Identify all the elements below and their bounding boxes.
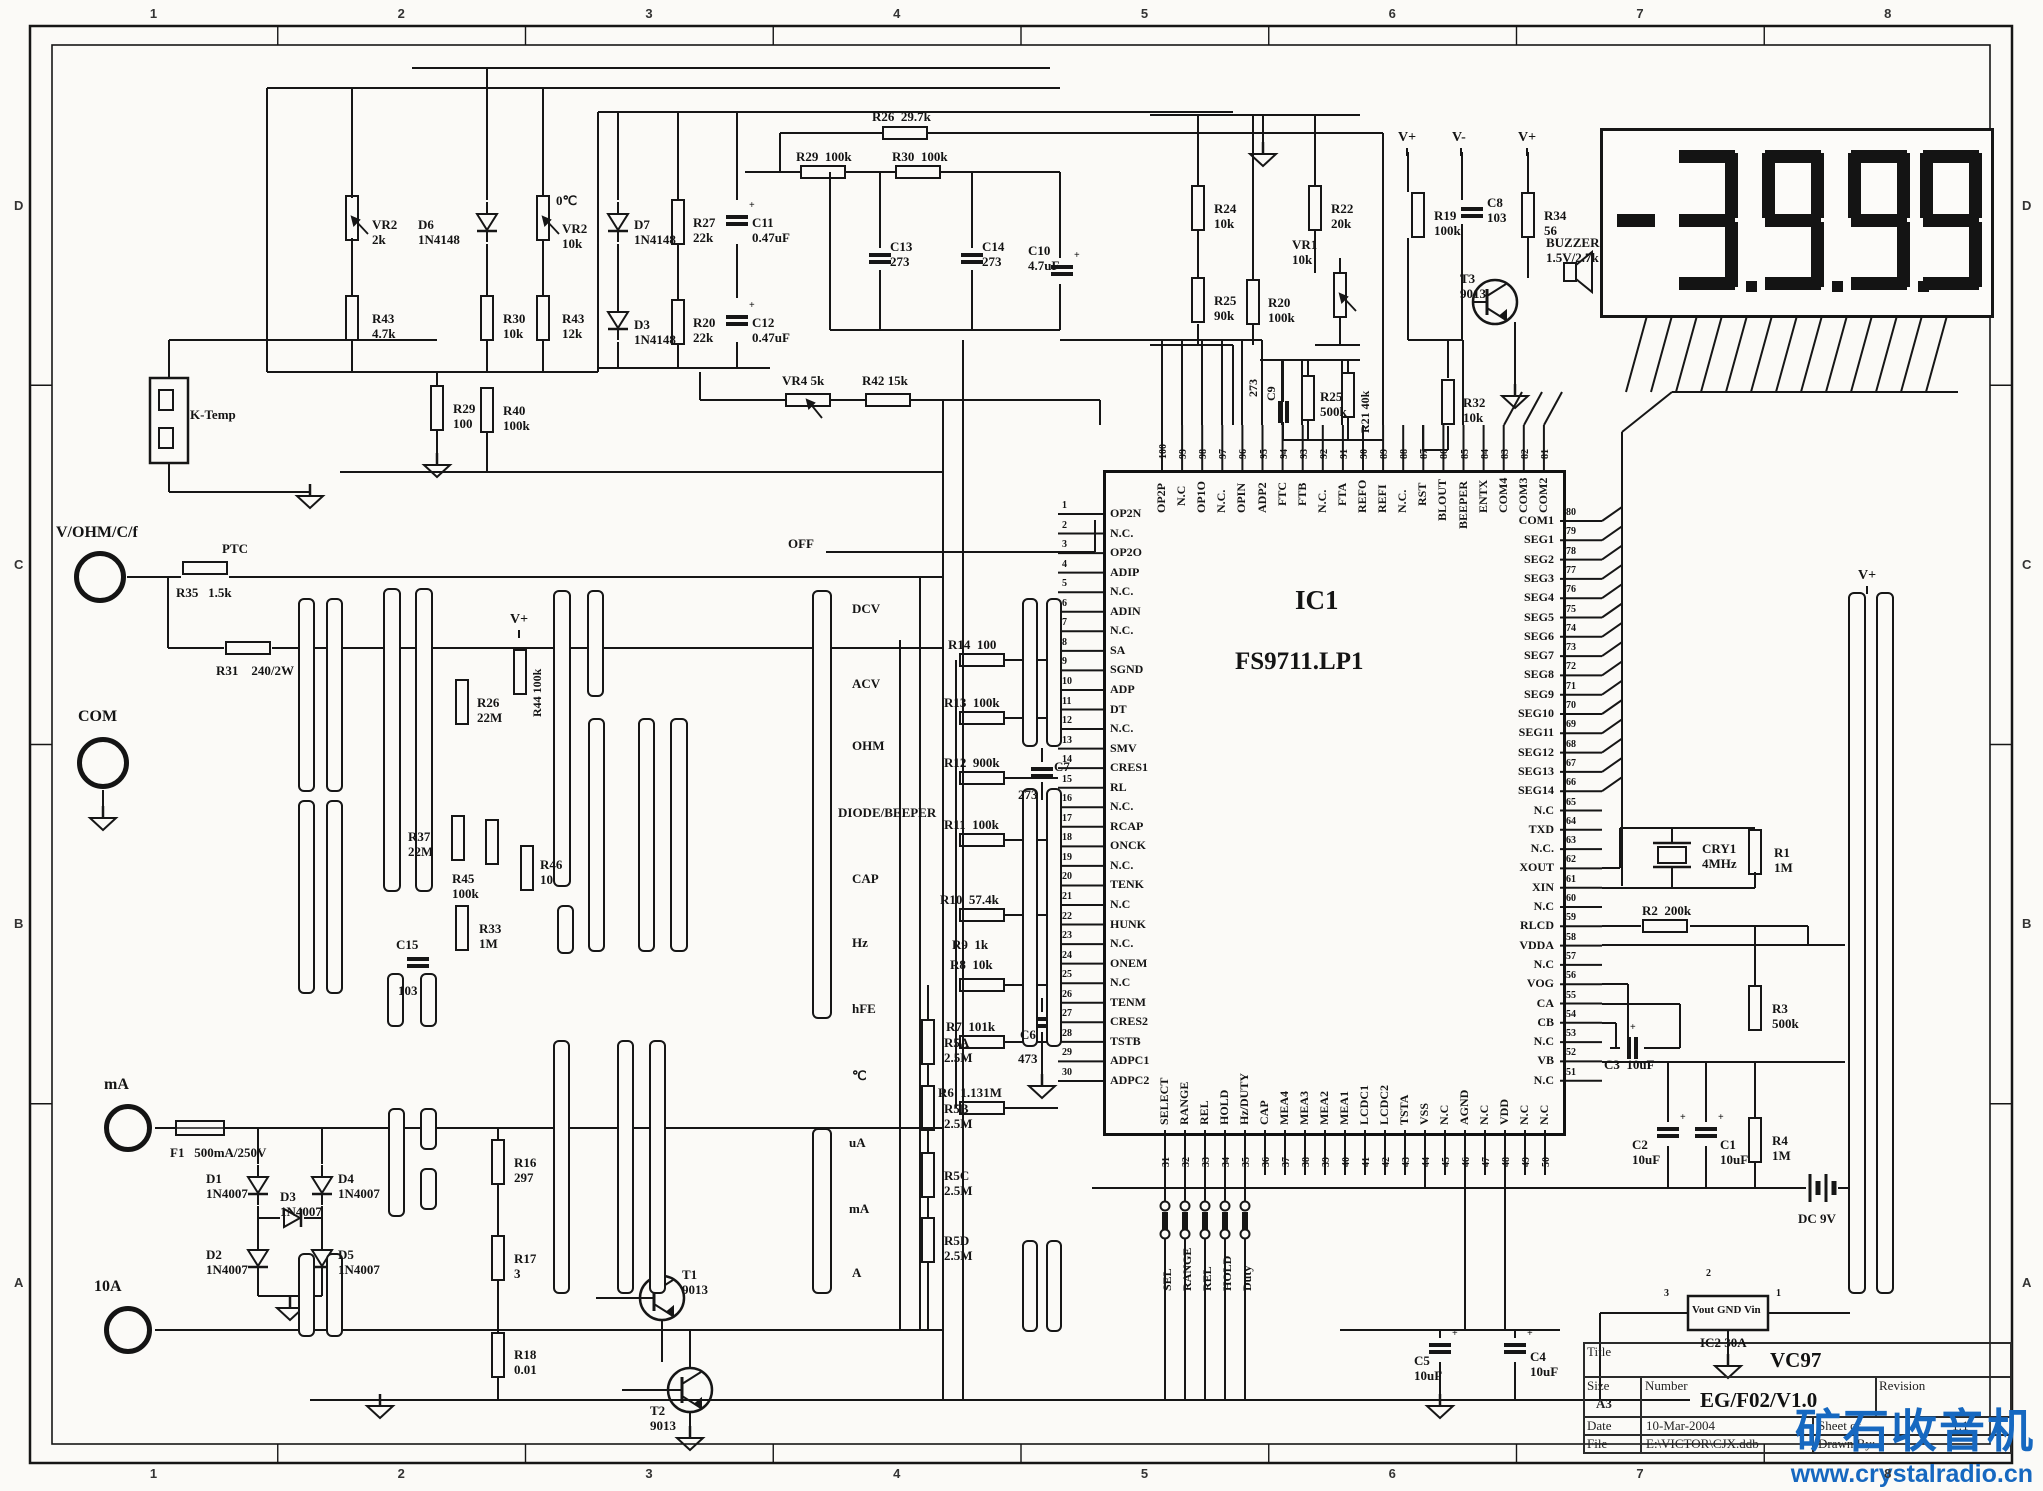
component-r7-label: R7 101k: [946, 1020, 995, 1035]
ic1-pin-13: SMV: [1110, 741, 1137, 756]
wire: [1851, 312, 1873, 392]
component-buzzer-label: BUZZER 1.5V/2.7k: [1546, 236, 1599, 265]
wire: [1602, 700, 1622, 714]
number-label: Number: [1645, 1378, 1688, 1394]
mode-hfe: hFE: [852, 1001, 876, 1017]
border-row-B: B: [14, 916, 23, 931]
ic1-pin-num-38: 38: [1301, 1157, 1312, 1167]
wire: [1544, 392, 1562, 425]
doc-title: VC97: [1770, 1348, 1821, 1373]
ic1-pin-num-35: 35: [1241, 1157, 1252, 1167]
component-c1-label: C1 10uF: [1720, 1138, 1748, 1167]
ic2-pin-3: 3: [1664, 1288, 1669, 1299]
ic1-pin-88: N.C.: [1395, 490, 1410, 513]
ic1-pin-55: CA: [1492, 996, 1554, 1011]
terminal-com: [77, 737, 129, 789]
lcd-segment: [1679, 214, 1735, 227]
button-hold: HOLD: [1220, 1256, 1235, 1291]
component-r42-label: R42 15k: [862, 374, 908, 389]
switch-bar: [1046, 788, 1062, 1047]
border-col-7: 7: [1636, 6, 1643, 21]
lcd-segment: [1851, 277, 1907, 290]
ic1-pin-num-31: 31: [1161, 1157, 1172, 1167]
switch-bar: [553, 1040, 570, 1294]
ic1-pin-5: N.C.: [1110, 584, 1133, 599]
ic1-pin-num-65: 65: [1566, 797, 1576, 808]
ic1-pin-17: RCAP: [1110, 819, 1143, 834]
component-d5-label: D5 1N4007: [338, 1248, 380, 1277]
wire: [1602, 546, 1622, 560]
ic1-pin-24: ONEM: [1110, 956, 1147, 971]
component-t2-label: T2 9013: [650, 1404, 676, 1433]
component-k-temp-label: K-Temp: [190, 408, 236, 423]
power-vplus: V+: [1858, 568, 1876, 584]
ic1-pin-33: REL: [1197, 1100, 1212, 1125]
ic1-pin-num-25: 25: [1062, 969, 1072, 980]
ic1-pin-96: OPIN: [1234, 483, 1249, 513]
ic1-pin-num-94: 94: [1279, 449, 1290, 459]
ic1-pin-67: SEG13: [1492, 764, 1554, 779]
wire: [1602, 604, 1622, 618]
component-r19-label: R19 100k: [1434, 209, 1461, 238]
ic1-pin-1: OP2N: [1110, 506, 1141, 521]
ic1-pin-num-86: 86: [1439, 449, 1450, 459]
button-duty: Duty: [1240, 1266, 1255, 1291]
border-col-3: 3: [645, 6, 652, 21]
component-t1-label: T1 9013: [682, 1268, 708, 1297]
terminal-10a: [104, 1306, 152, 1354]
ic1-pin-73: SEG7: [1492, 648, 1554, 663]
switch-bar: [1046, 1240, 1062, 1332]
ic1-pin-43: TSTA: [1397, 1095, 1412, 1125]
lcd-segment: [1762, 153, 1775, 218]
border-col-5: 5: [1141, 6, 1148, 21]
ic1-pin-num-42: 42: [1381, 1157, 1392, 1167]
lcd-segment: [1969, 153, 1982, 218]
component-r32-label: R32 10k: [1463, 396, 1485, 425]
switch-bar: [420, 973, 437, 1027]
component-c8-label: C8 103: [1487, 196, 1507, 225]
component-r18-label: R18 0.01: [514, 1348, 537, 1377]
ic1-pin-num-47: 47: [1481, 1157, 1492, 1167]
ic1-pin-num-87: 87: [1419, 449, 1430, 459]
ic1-pin-num-9: 9: [1062, 656, 1067, 667]
watermark-url: www.crystalradio.cn: [1791, 1460, 2033, 1489]
lcd-segment: [1897, 153, 1910, 218]
ic1-pin-69: SEG11: [1492, 725, 1554, 740]
switch-bar: [617, 1040, 634, 1294]
wire: [1602, 719, 1622, 733]
mode-diodebeeper: DIODE/BEEPER: [838, 805, 936, 821]
ic1-ref: IC1: [1295, 585, 1339, 616]
ic1-pin-95: ADP2: [1255, 483, 1270, 514]
component-r5a-label: R5A 2.5M: [944, 1036, 973, 1065]
ic1-pin-num-26: 26: [1062, 989, 1072, 1000]
ic1-pin-86: BLOUT: [1435, 479, 1450, 521]
ic1-pin-26: TENM: [1110, 995, 1146, 1010]
component-r26-label: R26 29.7k: [872, 110, 931, 125]
ic1-pin-num-85: 85: [1460, 449, 1471, 459]
ic1-pin-num-12: 12: [1062, 715, 1072, 726]
component-r27-label: R27 22k: [693, 216, 715, 245]
lcd-segment: [1679, 277, 1735, 290]
switch-bar: [587, 590, 604, 697]
ic1-pin-90: REFO: [1355, 480, 1370, 513]
component-r2-label: R2 200k: [1642, 904, 1691, 919]
switch-bar: [420, 1108, 437, 1150]
ic1-pin-60: N.C: [1492, 899, 1554, 914]
terminal-label: COM: [78, 708, 117, 726]
power-vplus: V+: [1398, 130, 1416, 146]
ic1-pin-58: VDDA: [1492, 938, 1554, 953]
border-row-C: C: [14, 557, 23, 572]
switch-bar: [1022, 788, 1038, 1047]
ic1-pin-num-60: 60: [1566, 893, 1576, 904]
ic1-pin-77: SEG3: [1492, 571, 1554, 586]
ic1-pin-6: ADIN: [1110, 604, 1141, 619]
component-vr1-label: VR1 10k: [1292, 238, 1317, 267]
ic1-pin-num-54: 54: [1566, 1009, 1576, 1020]
border-row-D: D: [2022, 198, 2031, 213]
border-col-2: 2: [398, 6, 405, 21]
wire: [1651, 312, 1673, 392]
switch-bar: [557, 905, 574, 954]
component-c12-label: C12 0.47uF: [752, 316, 790, 345]
ic1-pin-num-6: 6: [1062, 598, 1067, 609]
ic1-pin-num-21: 21: [1062, 891, 1072, 902]
component-d2-label: D2 1N4007: [206, 1248, 248, 1277]
terminal-label: 10A: [94, 1278, 122, 1296]
switch-bar: [420, 1168, 437, 1210]
ic1-pin-num-67: 67: [1566, 758, 1576, 769]
ic1-pin-8: SA: [1110, 643, 1125, 658]
ic1-pin-18: ONCK: [1110, 838, 1146, 853]
ic1-pin-num-15: 15: [1062, 774, 1072, 785]
component-r20-label: R20 100k: [1268, 296, 1295, 325]
ic1-pin-num-61: 61: [1566, 874, 1576, 885]
wire: [1602, 565, 1622, 579]
border-col-3: 3: [645, 1466, 652, 1481]
ic2-pin-2: 2: [1706, 1268, 1711, 1279]
wire: [1602, 526, 1622, 540]
ic1-pin-num-97: 97: [1218, 449, 1229, 459]
component-d7-label: D7 1N4148: [634, 218, 676, 247]
ic1-pin-num-75: 75: [1566, 604, 1576, 615]
switch-bar: [812, 590, 832, 1019]
component-r8: R8 10k: [950, 958, 993, 973]
switch-bar: [1046, 598, 1062, 747]
ic1-pin-num-98: 98: [1198, 449, 1209, 459]
component-r13-label: R13 100k: [944, 696, 1000, 711]
ic1-pin-12: N.C.: [1110, 721, 1133, 736]
ic1-pin-14: CRES1: [1110, 760, 1148, 775]
lcd-segment: [1617, 214, 1655, 227]
wire: [1602, 777, 1622, 791]
ic1-pin-30: ADPC2: [1110, 1073, 1149, 1088]
mode-hz: Hz: [852, 935, 868, 951]
ic1-pin-37: MEA4: [1277, 1091, 1292, 1125]
ic1-pin-35: Hz/DUTY: [1237, 1073, 1252, 1125]
ic1-pin-87: RST: [1415, 482, 1430, 505]
ic1-pin-num-52: 52: [1566, 1047, 1576, 1058]
ic1-pin-num-24: 24: [1062, 950, 1072, 961]
lcd-dot: [1918, 281, 1929, 292]
switch-bar: [383, 588, 401, 892]
component-0℃: 0℃: [556, 194, 577, 209]
ic1-pin-99: N.C: [1174, 485, 1189, 505]
wire: [1602, 507, 1622, 521]
ic1-pin-32: RANGE: [1177, 1082, 1192, 1125]
ic1-pin-25: N.C: [1110, 975, 1130, 990]
ic1-pin-num-88: 88: [1399, 449, 1410, 459]
ic1-pin-num-18: 18: [1062, 832, 1072, 843]
border-row-C: C: [2022, 557, 2031, 572]
component-c13-label: C13 273: [890, 240, 912, 269]
ic1-pin-num-96: 96: [1238, 449, 1249, 459]
mode-a: A: [852, 1265, 861, 1281]
ic1-pin-num-72: 72: [1566, 661, 1576, 672]
component-c10-label: C10 4.7uF: [1028, 244, 1059, 273]
lcd-segment: [1851, 214, 1907, 227]
ic1-pin-50: N.C: [1537, 1105, 1552, 1125]
switch-bar: [298, 800, 315, 994]
wire: [682, 1372, 701, 1384]
ic1-part: FS9711.LP1: [1235, 648, 1364, 676]
component-vr2-label: VR2 10k: [562, 222, 587, 251]
wire: [1676, 312, 1698, 392]
lcd-segment: [1920, 153, 1933, 218]
wire: [1602, 661, 1622, 675]
ic1-pin-59: RLCD: [1492, 918, 1554, 933]
mode-ua: uA: [849, 1135, 866, 1151]
ic1-pin-num-70: 70: [1566, 700, 1576, 711]
ic1-pin-num-4: 4: [1062, 559, 1067, 570]
component-r25-label: R25 90k: [1214, 294, 1236, 323]
plus-sign: +: [1074, 250, 1080, 261]
component-r5d-label: R5D 2.5M: [944, 1234, 973, 1263]
ic1-pin-74: SEG6: [1492, 629, 1554, 644]
ic1-pin-num-62: 62: [1566, 854, 1576, 865]
ic1-pin-num-73: 73: [1566, 642, 1576, 653]
plus-sign: +: [1718, 1112, 1724, 1123]
ic1-pin-7: N.C.: [1110, 623, 1133, 638]
wire: [1602, 758, 1622, 772]
switch-bar: [553, 590, 571, 887]
file-label: File: [1587, 1436, 1607, 1452]
ic1-pin-num-58: 58: [1566, 932, 1576, 943]
ic1-pin-78: SEG2: [1492, 552, 1554, 567]
component-r22-label: R22 20k: [1331, 202, 1353, 231]
ic1-pin-27: CRES2: [1110, 1014, 1148, 1029]
border-col-8: 8: [1884, 1466, 1891, 1481]
ic1-pin-81: COM2: [1536, 478, 1551, 513]
plus-sign: +: [1452, 1328, 1458, 1339]
ic1-pin-num-56: 56: [1566, 970, 1576, 981]
component-r12-label: R12 900k: [944, 756, 1000, 771]
ic1-pin-22: HUNK: [1110, 917, 1146, 932]
border-col-1: 1: [150, 1466, 157, 1481]
ic1-pin-num-28: 28: [1062, 1028, 1072, 1039]
ic1-pin-45: N.C: [1437, 1105, 1452, 1125]
border-row-D: D: [14, 198, 23, 213]
component-c15: C15: [396, 938, 418, 953]
ic1-pin-83: COM4: [1496, 478, 1511, 513]
component-r9: R9 1k: [952, 938, 988, 953]
ic1-pin-94: FTC: [1275, 482, 1290, 506]
ic1-pin-num-66: 66: [1566, 777, 1576, 788]
border-row-B: B: [2022, 916, 2031, 931]
ic1-pin-num-63: 63: [1566, 835, 1576, 846]
lcd-dot: [1832, 281, 1843, 292]
mode-acv: ACV: [852, 676, 880, 692]
ic1-pin-num-95: 95: [1259, 449, 1270, 459]
wire: [1602, 623, 1622, 637]
component-r43-label: R43 12k: [562, 312, 584, 341]
component-r33-label: R33 1M: [479, 922, 501, 951]
ic1-pin-num-1: 1: [1062, 500, 1067, 511]
switch-bar: [387, 973, 404, 1027]
ic1-pin-34: HOLD: [1217, 1090, 1232, 1125]
ic1-pin-num-45: 45: [1441, 1157, 1452, 1167]
ic1-pin-4: ADIP: [1110, 565, 1139, 580]
component-r10-label: R10 57.4k: [940, 893, 999, 908]
component-r11-label: R11 100k: [944, 818, 999, 833]
ic1-pin-85: BEEPER: [1456, 481, 1471, 529]
ic1-pin-num-3: 3: [1062, 539, 1067, 550]
border-row-A: A: [14, 1275, 23, 1290]
component-r34-label: R34 56: [1544, 209, 1566, 238]
component-r30-label: R30 100k: [892, 150, 948, 165]
ic1-pin-93: FTB: [1295, 482, 1310, 505]
ic1-pin-97: N.C.: [1214, 490, 1229, 513]
ic1-pin-num-99: 99: [1178, 449, 1189, 459]
component-r14-label: R14 100: [948, 638, 996, 653]
ic1-pin-num-34: 34: [1221, 1157, 1232, 1167]
ic1-pin-56: VOG: [1492, 976, 1554, 991]
ic1-pin-num-48: 48: [1501, 1157, 1512, 1167]
component-d6-label: D6 1N4148: [418, 218, 460, 247]
lcd-segment: [1725, 153, 1738, 218]
border-col-7: 7: [1636, 1466, 1643, 1481]
ic1-pin-num-33: 33: [1201, 1157, 1212, 1167]
wire: [1926, 312, 1948, 392]
ic1-pin-31: SELECT: [1157, 1078, 1172, 1125]
ic1-pin-40: MEA1: [1337, 1091, 1352, 1125]
component-vr2-label: VR2 2k: [372, 218, 397, 247]
ic1-pin-num-37: 37: [1281, 1157, 1292, 1167]
ic1-pin-15: RL: [1110, 780, 1127, 795]
component-c4-label: C4 10uF: [1530, 1350, 1558, 1379]
wire: [1726, 312, 1748, 392]
switch-bar: [326, 800, 343, 994]
wire: [1602, 681, 1622, 695]
switch-bar: [1876, 592, 1894, 1294]
wire: [1701, 312, 1723, 392]
border-row-A: A: [2022, 1275, 2031, 1290]
ic1-pin-100: OP2P: [1154, 483, 1169, 513]
ic1-pin-num-16: 16: [1062, 793, 1072, 804]
ic1-pin-num-19: 19: [1062, 852, 1072, 863]
ic1-pin-44: VSS: [1417, 1103, 1432, 1125]
plus-sign: +: [749, 200, 755, 211]
ic1-pin-num-78: 78: [1566, 546, 1576, 557]
switch-bar: [298, 1253, 315, 1337]
ic1-pin-num-77: 77: [1566, 565, 1576, 576]
ic1-pin-num-36: 36: [1261, 1157, 1272, 1167]
component-r43-label: R43 4.7k: [372, 312, 395, 341]
mode-ohm: OHM: [852, 738, 885, 754]
ic1-pin-38: MEA3: [1297, 1091, 1312, 1125]
ic1-pin-9: SGND: [1110, 662, 1143, 677]
switch-bar: [649, 1040, 666, 1294]
ic1-pin-98: OP1O: [1194, 481, 1209, 513]
power-vminus: V-: [1452, 130, 1466, 146]
ic1-pin-65: N.C: [1492, 803, 1554, 818]
mode-cap: CAP: [852, 871, 879, 887]
ic1-pin-20: TENK: [1110, 877, 1144, 892]
ic1-pin-47: N.C: [1477, 1105, 1492, 1125]
switch-bar: [1022, 598, 1038, 747]
component-c5-label: C5 10uF: [1414, 1354, 1442, 1383]
component-r29-label: R29 100: [453, 402, 475, 431]
plus-sign: +: [1680, 1112, 1686, 1123]
component-r44: R44 100k: [530, 669, 545, 717]
ic1-pin-91: FTA: [1335, 483, 1350, 506]
ic1-pin-21: N.C: [1110, 897, 1130, 912]
ic1-pin-num-59: 59: [1566, 912, 1576, 923]
ic1-pin-19: N.C.: [1110, 858, 1133, 873]
component-f1: F1 500mA/250V: [170, 1146, 266, 1161]
terminal-label: V/OHM/C/f: [56, 524, 138, 542]
component-c14-label: C14 273: [982, 240, 1004, 269]
ic1-pin-29: ADPC1: [1110, 1053, 1149, 1068]
component-ptc: PTC: [222, 542, 248, 557]
switch-bar: [388, 1108, 405, 1217]
ic1-pin-num-39: 39: [1321, 1157, 1332, 1167]
ic1-pin-89: REFI: [1375, 485, 1390, 514]
wire: [1801, 312, 1823, 392]
mode-ma: mA: [849, 1201, 869, 1217]
component-r25-label: R25 500k: [1320, 390, 1347, 419]
wire: [1751, 312, 1773, 392]
ic1-pin-num-80: 80: [1566, 507, 1576, 518]
ic2-pin-1: 1: [1776, 1288, 1781, 1299]
ic1-pin-10: ADP: [1110, 682, 1135, 697]
component-273: 273: [1018, 788, 1038, 803]
mode-off: OFF: [788, 536, 814, 552]
component-c9: C9: [1264, 386, 1279, 401]
ic1-pin-num-32: 32: [1181, 1157, 1192, 1167]
ic1-pin-79: SEG1: [1492, 532, 1554, 547]
date-label: Date: [1587, 1418, 1612, 1434]
component-r6-label: R6 1.131M: [938, 1086, 1002, 1101]
file-value: E:\VICTOR\CJX.ddb: [1646, 1436, 1759, 1452]
ic1-pin-39: MEA2: [1317, 1091, 1332, 1125]
button-rel: REL: [1200, 1266, 1215, 1291]
ic1-pin-num-81: 81: [1540, 449, 1551, 459]
lcd-segment: [1848, 153, 1861, 218]
size-value: A3: [1596, 1396, 1612, 1412]
border-col-5: 5: [1141, 1466, 1148, 1481]
lcd-dot: [1746, 281, 1757, 292]
lcd-segment: [1811, 153, 1824, 218]
ic1-pin-num-8: 8: [1062, 637, 1067, 648]
ic1-pin-51: N.C: [1492, 1073, 1554, 1088]
ic1-pin-num-74: 74: [1566, 623, 1576, 634]
ic1-pin-num-27: 27: [1062, 1008, 1072, 1019]
ic1-pin-63: N.C.: [1492, 841, 1554, 856]
border-col-6: 6: [1389, 1466, 1396, 1481]
